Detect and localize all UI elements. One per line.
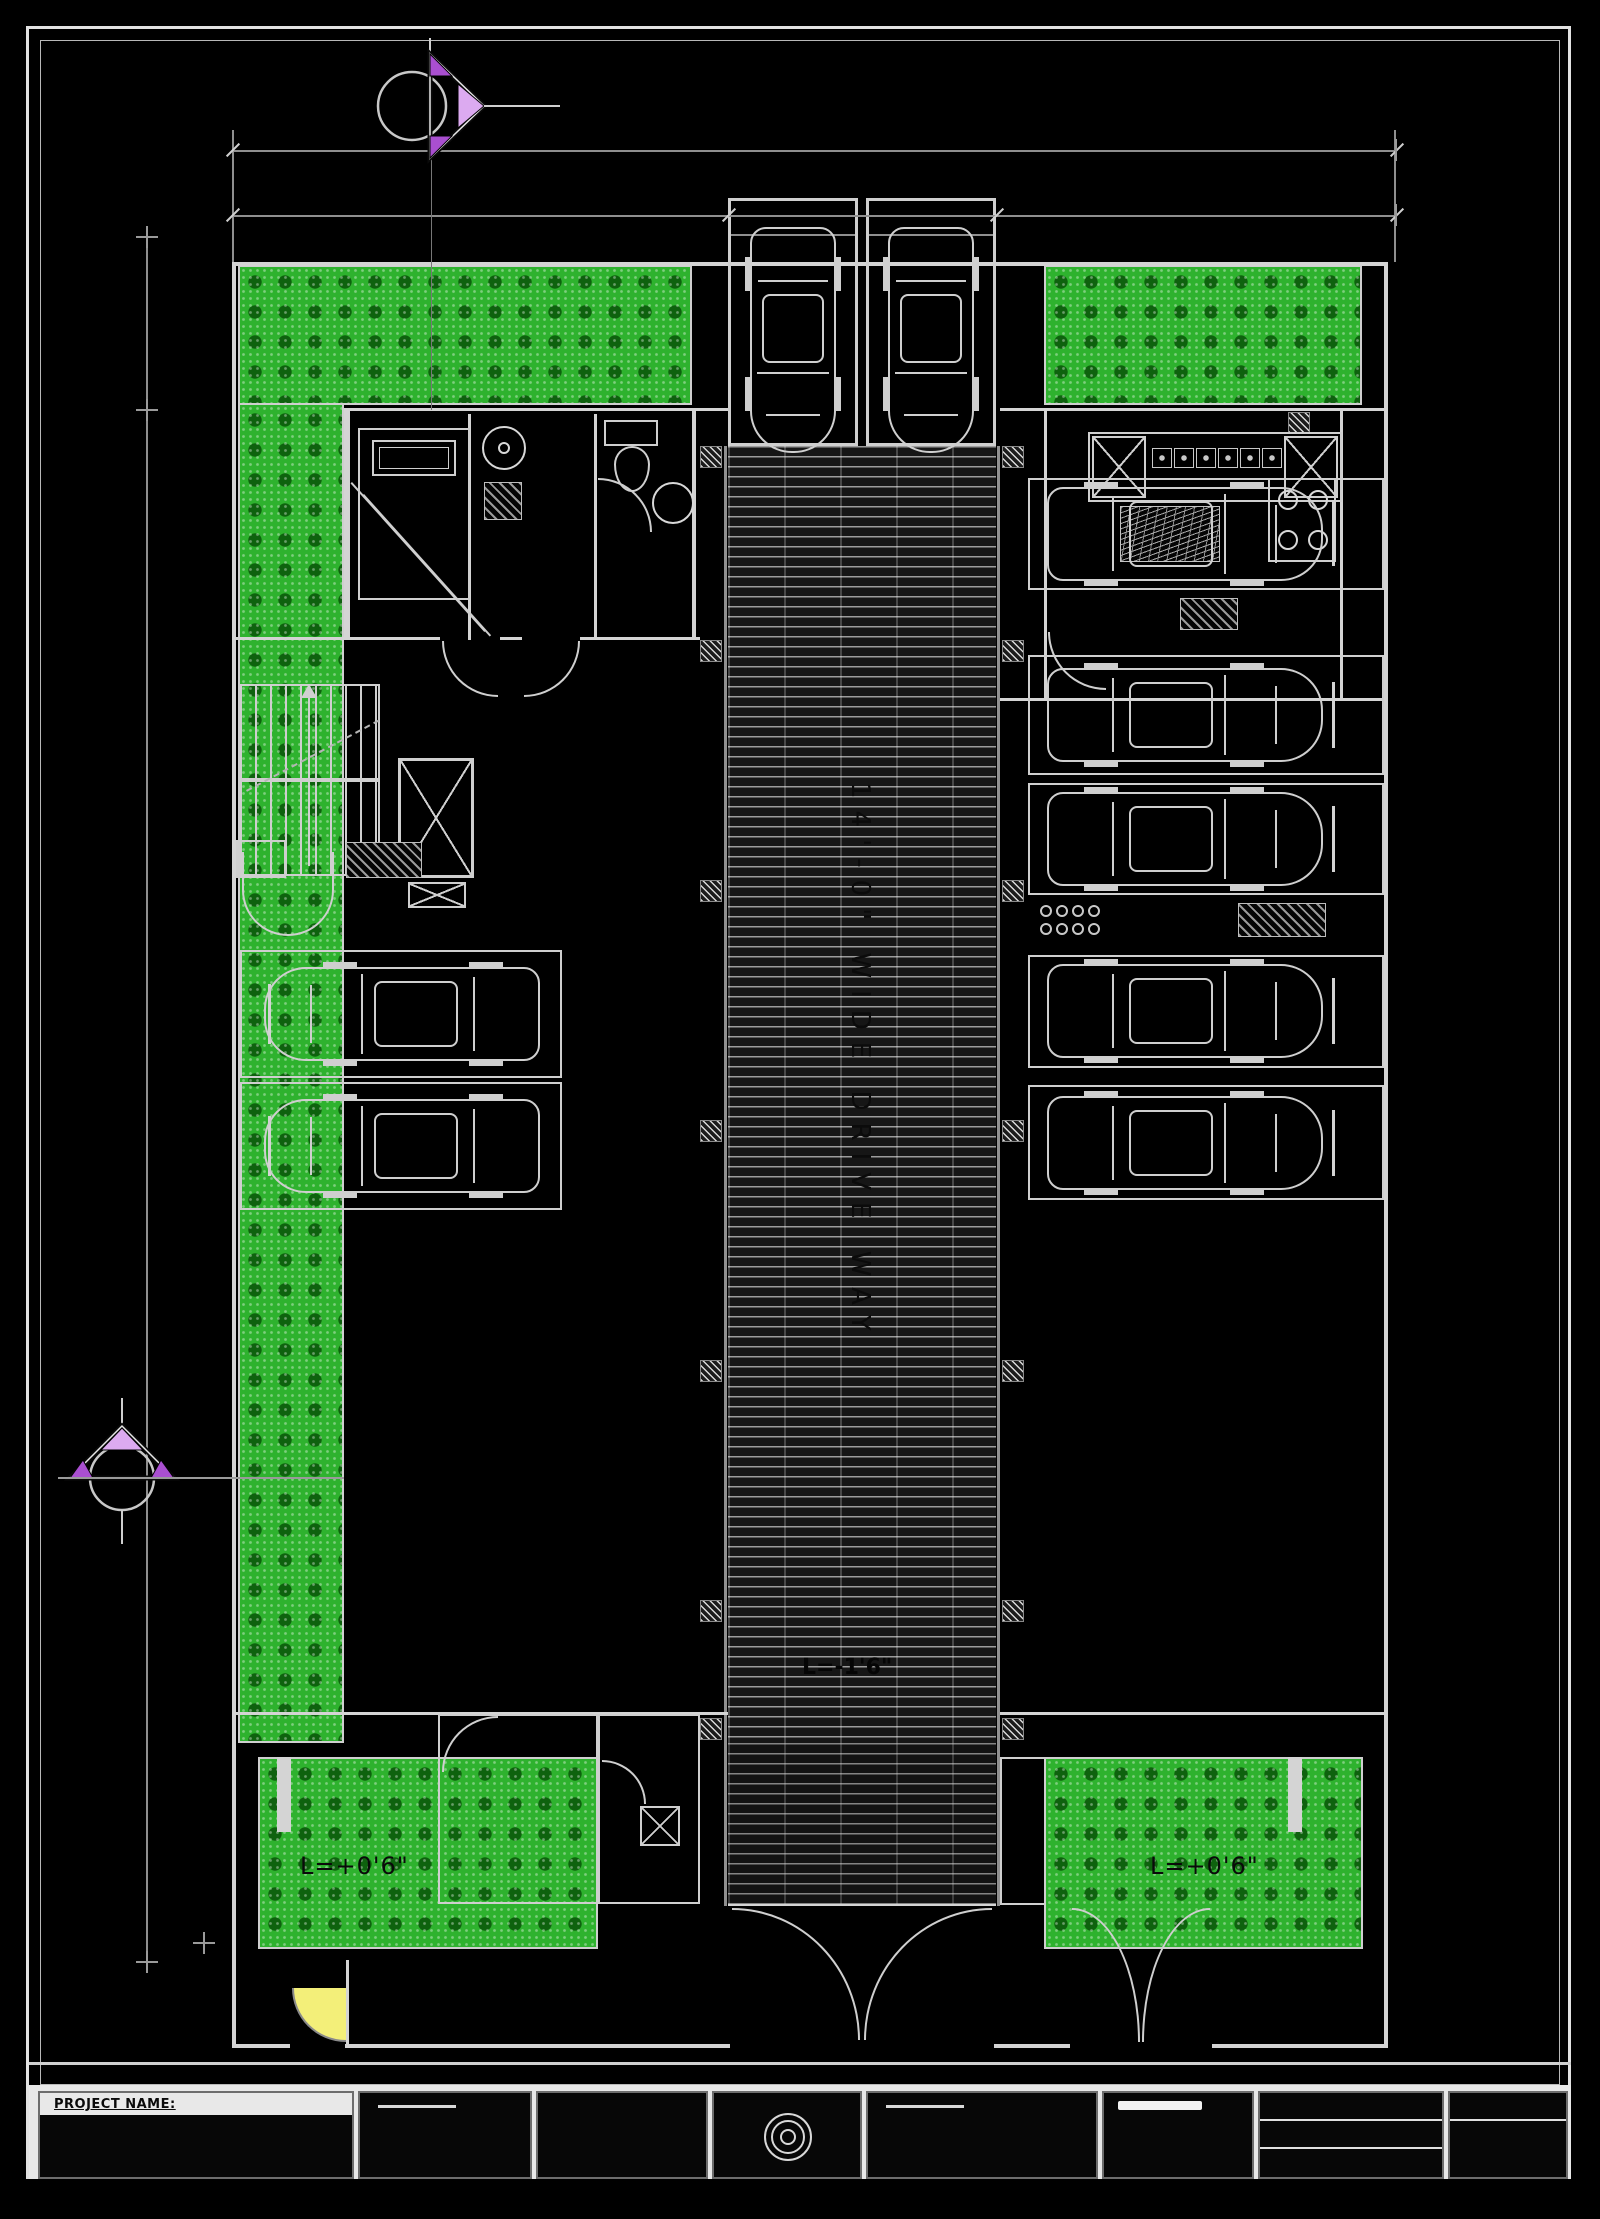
- car-roof: [762, 294, 823, 363]
- dim-line-top-2: [232, 215, 1396, 217]
- wheel-stop: [1332, 978, 1335, 1044]
- ramp-hatch: [1238, 903, 1326, 937]
- bollard: [1040, 905, 1052, 917]
- wall: [1000, 1712, 1388, 1715]
- title-box-sheet-info: [1258, 2091, 1444, 2179]
- driveway-edge-right: [997, 446, 1000, 1906]
- title-box-client: [358, 2091, 532, 2179]
- section-marker-top-tail: [500, 105, 560, 107]
- bollard: [1072, 923, 1084, 935]
- car: [262, 1094, 542, 1198]
- car: [1045, 663, 1325, 767]
- column: [1002, 1360, 1024, 1382]
- meter: [1240, 448, 1260, 468]
- title-box-sheet-no: [1448, 2091, 1568, 2179]
- title-label-bar: [1118, 2101, 1202, 2110]
- front-wall-seg: [345, 2044, 730, 2048]
- bollard-group: [1038, 903, 1110, 939]
- wheel-stop: [1332, 1110, 1335, 1176]
- toilet-tank: [604, 420, 658, 446]
- title-underline: [886, 2105, 964, 2108]
- lawn-right-level-label: L=+0'6": [1150, 1852, 1259, 1880]
- boundary-wall-right: [1384, 262, 1388, 2048]
- dim-cross: [1395, 139, 1397, 161]
- car: [1045, 482, 1325, 586]
- title-box-firm: [866, 2091, 1098, 2179]
- dim-line-left: [146, 235, 148, 1962]
- section-marker-left-tail: [58, 1477, 344, 1479]
- side-shaft: [1000, 1757, 1046, 1905]
- column: [700, 1718, 722, 1740]
- wall: [580, 637, 700, 640]
- section-marker-left-icon: [55, 1396, 195, 1546]
- driveway-level-label: L=-1'6": [802, 1655, 892, 1680]
- column: [1288, 412, 1310, 434]
- wall: [344, 410, 350, 640]
- dim-cross: [136, 236, 158, 238]
- logo-stamp-core: [780, 2129, 796, 2145]
- dim-cross: [1395, 204, 1397, 226]
- front-wall-seg: [994, 2044, 1070, 2048]
- dim-cross: [136, 1961, 158, 1963]
- bollard: [1056, 905, 1068, 917]
- pedestrian-gate-jamb: [346, 1960, 349, 2046]
- meter: [1218, 448, 1238, 468]
- bollard: [1088, 905, 1100, 917]
- bollard: [1088, 923, 1100, 935]
- bed-pillow-inner: [379, 447, 449, 469]
- car: [1045, 787, 1325, 891]
- floor-grating: [1180, 598, 1238, 630]
- title-underline: [378, 2105, 456, 2108]
- front-wall-seg: [232, 2044, 290, 2048]
- title-box-project: PROJECT NAME:: [38, 2091, 354, 2179]
- driveway-width-label: 14'-0" WIDE DRIVE WAY: [845, 782, 875, 1542]
- column: [700, 1120, 722, 1142]
- meter-row: [1152, 448, 1282, 470]
- column: [700, 1360, 722, 1382]
- bollard: [1072, 905, 1084, 917]
- column: [700, 880, 722, 902]
- bollard: [1040, 923, 1052, 935]
- stair-up-arrowhead: [301, 684, 317, 698]
- title-box-notes: [536, 2091, 708, 2179]
- lawn-top-right: [1044, 265, 1362, 405]
- meter: [1196, 448, 1216, 468]
- car: [883, 225, 979, 455]
- wheel-stop: [1332, 500, 1335, 566]
- boundary-wall-left: [232, 262, 236, 2048]
- stair-up-arrow-line: [308, 694, 310, 866]
- meter: [1262, 448, 1282, 468]
- title-box-drawn: [1102, 2091, 1254, 2179]
- wall: [594, 414, 597, 640]
- gate-wall-line: [728, 1904, 996, 1906]
- road-edge-line: [29, 2062, 1571, 2065]
- column: [1002, 640, 1024, 662]
- column: [1002, 1600, 1024, 1622]
- round-basin: [652, 482, 694, 524]
- section-marker-top-icon: [372, 36, 502, 176]
- dim-cross: [193, 1942, 215, 1944]
- lawn-left-level-label: L=+0'6": [300, 1852, 409, 1880]
- dim-cross: [136, 409, 158, 411]
- project-name-label: PROJECT NAME:: [54, 2097, 176, 2112]
- planter-box: [236, 840, 286, 878]
- column: [1002, 880, 1024, 902]
- wheel-stop: [1332, 682, 1335, 748]
- column: [1002, 1718, 1024, 1740]
- lawn-pier-right: [1288, 1757, 1302, 1832]
- lawn-top-left: [238, 265, 692, 405]
- wall: [232, 637, 440, 640]
- column: [1002, 446, 1024, 468]
- wall: [344, 408, 728, 411]
- wheel-stop: [1332, 806, 1335, 872]
- shower-tray: [484, 482, 522, 520]
- wall: [692, 410, 696, 640]
- bollard: [1056, 923, 1068, 935]
- shaft-small: [640, 1806, 680, 1846]
- column: [700, 640, 722, 662]
- column: [700, 446, 722, 468]
- title-box-logo: [712, 2091, 862, 2179]
- column: [700, 1600, 722, 1622]
- car: [262, 962, 542, 1066]
- wash-basin-drain: [498, 442, 510, 454]
- driveway-apron: [728, 1743, 996, 1906]
- lawn-pier-left: [277, 1757, 291, 1832]
- wall: [500, 637, 522, 640]
- front-wall-seg: [1212, 2044, 1388, 2048]
- car: [745, 225, 841, 455]
- shaft-box: [346, 842, 422, 878]
- car: [1045, 959, 1325, 1063]
- column: [1002, 1120, 1024, 1142]
- lift-machine-box: [408, 882, 466, 908]
- driveway-edge-left: [724, 446, 727, 1906]
- wall: [1000, 408, 1388, 411]
- meter: [1174, 448, 1194, 468]
- car: [1045, 1091, 1325, 1195]
- floor-plan-sheet: L=+0'6" L=+0'6" 14'-0" WIDE DRIVE WAY L=…: [0, 0, 1600, 2219]
- meter: [1152, 448, 1172, 468]
